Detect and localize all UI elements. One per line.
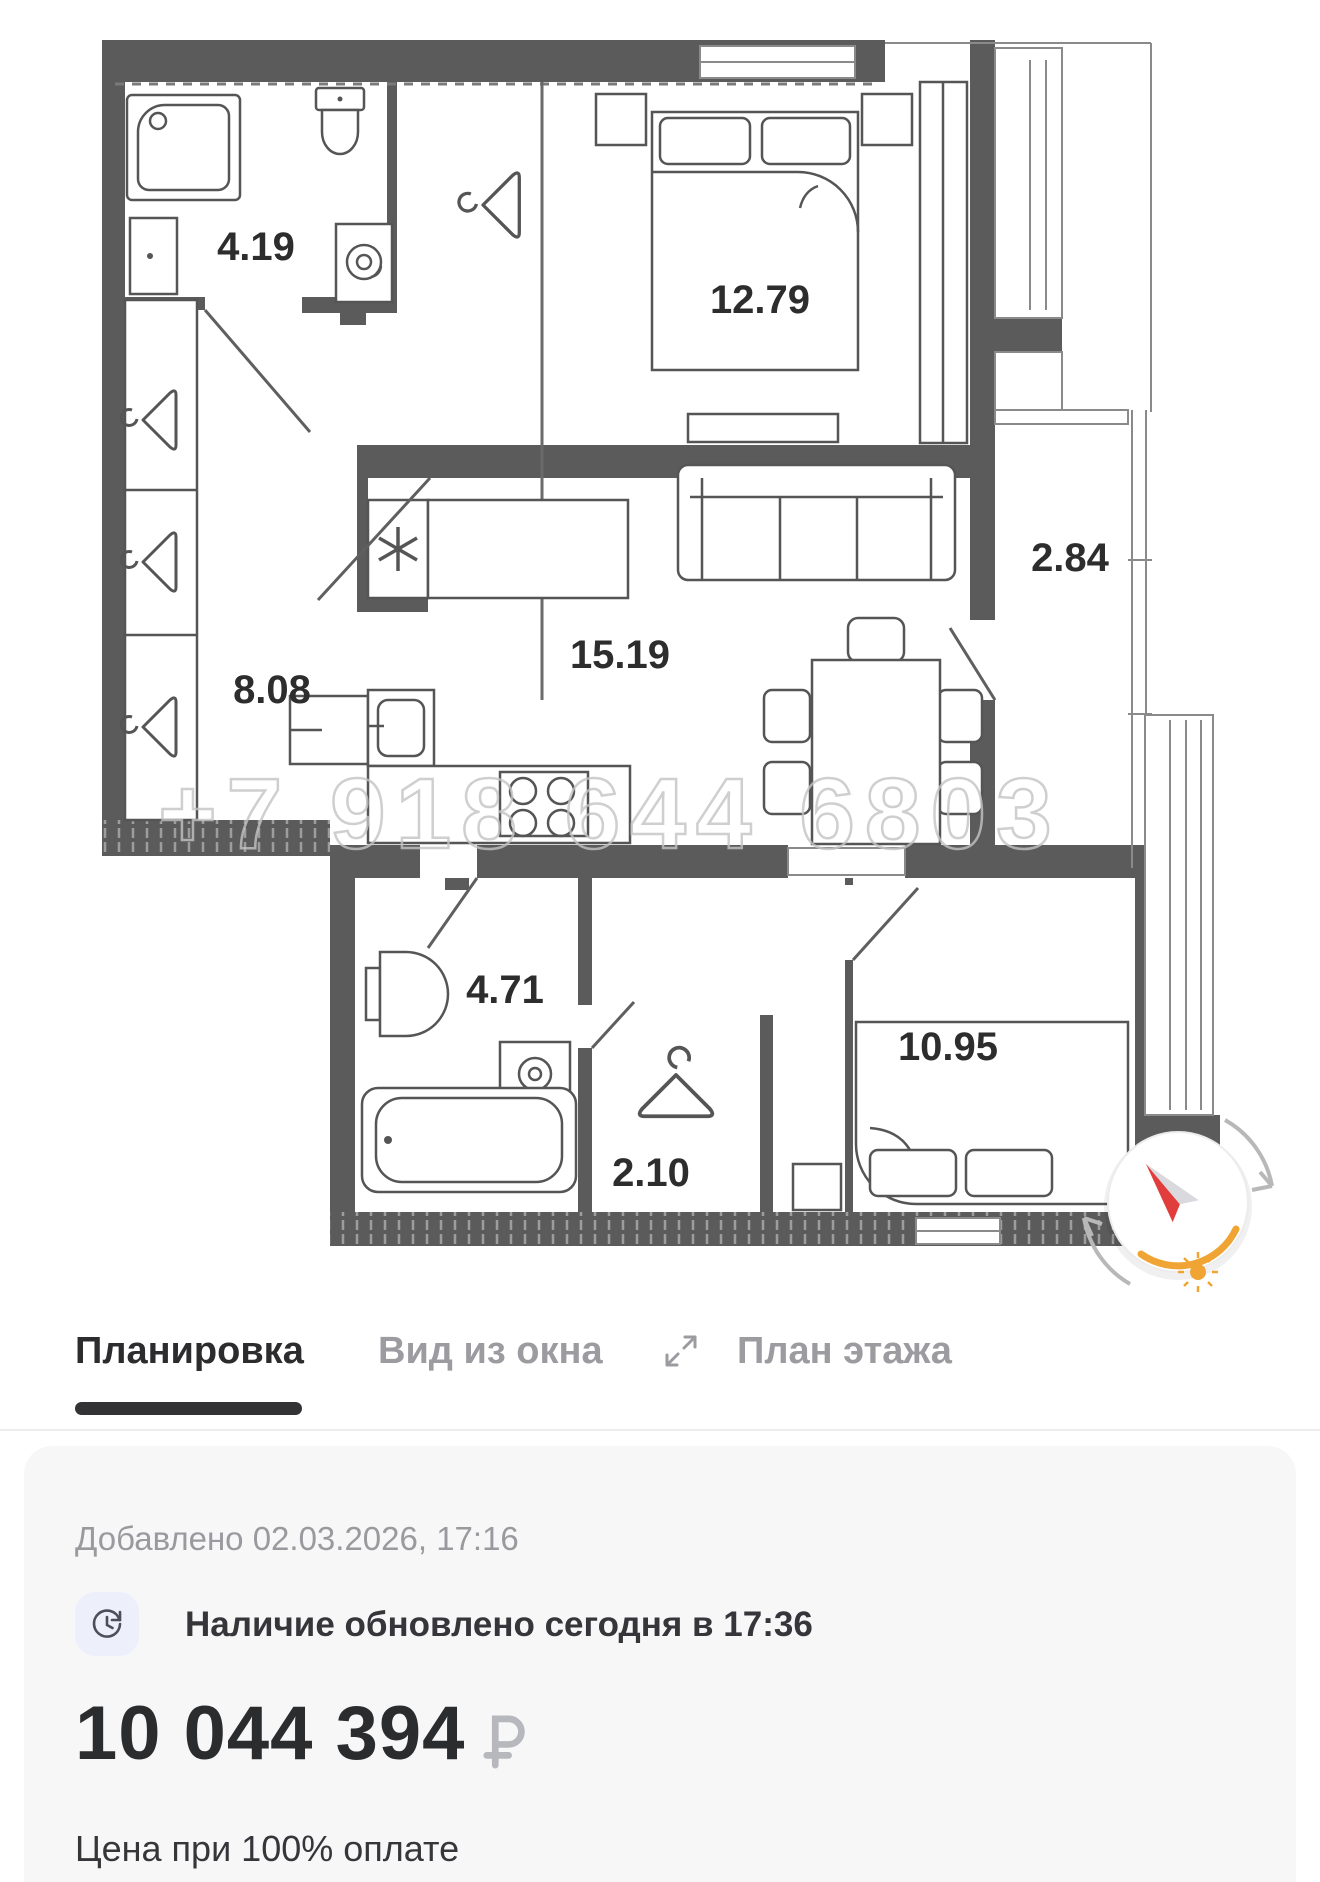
room-area-label: 15.19: [570, 633, 670, 677]
sink-icon: [130, 218, 177, 294]
sun-icon: [1178, 1252, 1218, 1292]
bathtub-icon: [362, 1088, 576, 1192]
price-value: 10 044 394: [75, 1696, 465, 1772]
room-area-label: 2.84: [1031, 536, 1110, 580]
room-area-label: 12.79: [710, 278, 810, 322]
floor-plan: 4.19 12.79 8.08 15.19 2.84 4.71 2.10 10.…: [0, 0, 1320, 1320]
room-area-label: 8.08: [233, 668, 311, 712]
nightstand: [793, 1164, 841, 1210]
tab-layout[interactable]: Планировка: [75, 1330, 304, 1373]
kitchen-counter: [368, 500, 628, 598]
washing-machine-icon: [336, 224, 392, 302]
sofa-icon: [678, 465, 955, 580]
bedroom-wardrobe: [920, 82, 967, 443]
shower-icon: [127, 95, 240, 200]
added-date: Добавлено 02.03.2026, 17:16: [75, 1520, 519, 1558]
watermark-text: +7 918 644 6803: [158, 758, 1062, 870]
room-area-label: 4.71: [466, 968, 544, 1012]
hanger-icon: [640, 1048, 713, 1117]
hanger-icon: [459, 173, 519, 237]
media-tabs: Планировка Вид из окна План этажа: [0, 1316, 1320, 1428]
clock-refresh-icon: [89, 1606, 125, 1642]
hall-wardrobe: [121, 300, 197, 820]
active-tab-underline: [75, 1402, 302, 1415]
tab-window-view[interactable]: Вид из окна: [378, 1330, 603, 1373]
kitchen-sink: [368, 690, 434, 766]
bed-main: [596, 94, 912, 370]
divider: [0, 1429, 1320, 1431]
price-note: Цена при 100% оплате: [75, 1828, 459, 1870]
tab-floor-plan[interactable]: План этажа: [737, 1330, 952, 1373]
toilet-icon: [316, 88, 364, 154]
expand-icon[interactable]: [662, 1332, 700, 1370]
room-area-label: 10.95: [898, 1025, 998, 1069]
tv-console: [688, 414, 838, 442]
price-row: 10 044 394: [75, 1696, 527, 1772]
room-area-label: 2.10: [612, 1151, 690, 1195]
availability-text: Наличие обновлено сегодня в 17:36: [185, 1605, 813, 1645]
room-area-label: 4.19: [217, 225, 295, 269]
listing-card: Добавлено 02.03.2026, 17:16 Наличие обно…: [24, 1446, 1296, 1882]
ruble-icon: [483, 1714, 527, 1770]
toilet-icon: [366, 952, 448, 1036]
availability-icon-pill: [75, 1592, 139, 1656]
